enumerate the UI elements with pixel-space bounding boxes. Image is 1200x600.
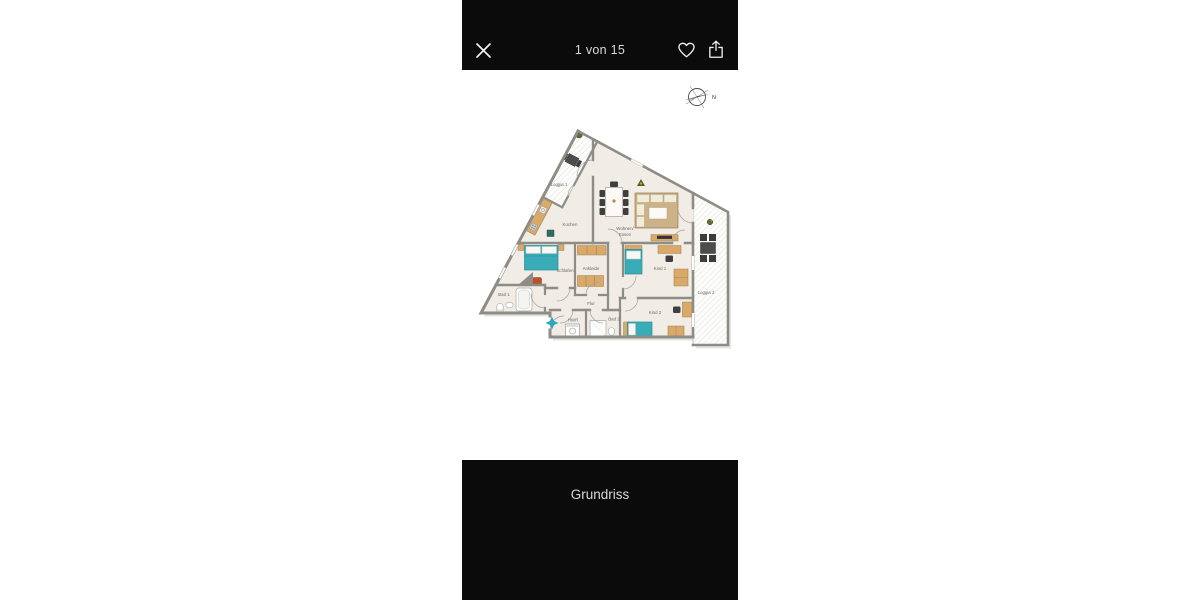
label-kochen: Kochen xyxy=(563,222,578,227)
label-wohnen-2: Essen xyxy=(619,232,632,237)
image-caption: Grundriss xyxy=(462,487,738,502)
label-hwr: HWR xyxy=(568,318,579,323)
gallery-viewer: 1 von 15 xyxy=(462,0,738,600)
screenshot-root: 1 von 15 xyxy=(0,0,1200,600)
label-kind2: Kind 2 xyxy=(649,310,662,315)
kitchen-island xyxy=(547,230,554,237)
photo-area: N Loggia 1 Kochen Wohnen/ Essen Schlafen… xyxy=(462,70,738,460)
label-bad1: Bad 1 xyxy=(498,292,510,297)
image-counter: 1 von 15 xyxy=(575,43,625,57)
sofa xyxy=(635,193,678,228)
compass-north-label: N xyxy=(712,95,716,101)
close-button[interactable] xyxy=(475,42,492,59)
label-wohnen-1: Wohnen/ xyxy=(616,226,634,231)
heart-icon xyxy=(677,41,696,59)
washing-machine xyxy=(566,324,580,337)
share-button[interactable] xyxy=(707,40,725,59)
viewer-top-bar: 1 von 15 xyxy=(462,0,738,70)
bed-schlafen xyxy=(518,245,564,271)
label-flur: Flur xyxy=(587,301,595,306)
favorite-button[interactable] xyxy=(677,41,696,59)
room-loggia2 xyxy=(693,193,728,345)
label-kind1: Kind 1 xyxy=(654,266,667,271)
label-loggia2: Loggia 2 xyxy=(698,290,715,295)
label-bad2: Bad 2 xyxy=(608,317,620,322)
share-icon xyxy=(707,40,725,59)
viewer-bottom-bar: Grundriss xyxy=(462,460,738,600)
floorplan-image[interactable]: N Loggia 1 Kochen Wohnen/ Essen Schlafen… xyxy=(462,70,738,460)
label-schlafen: Schlafen xyxy=(556,268,574,273)
compass: N xyxy=(685,86,716,108)
label-ankleide: Ankleide xyxy=(583,266,600,271)
label-loggia1: Loggia 1 xyxy=(551,182,568,187)
close-icon xyxy=(475,42,492,59)
